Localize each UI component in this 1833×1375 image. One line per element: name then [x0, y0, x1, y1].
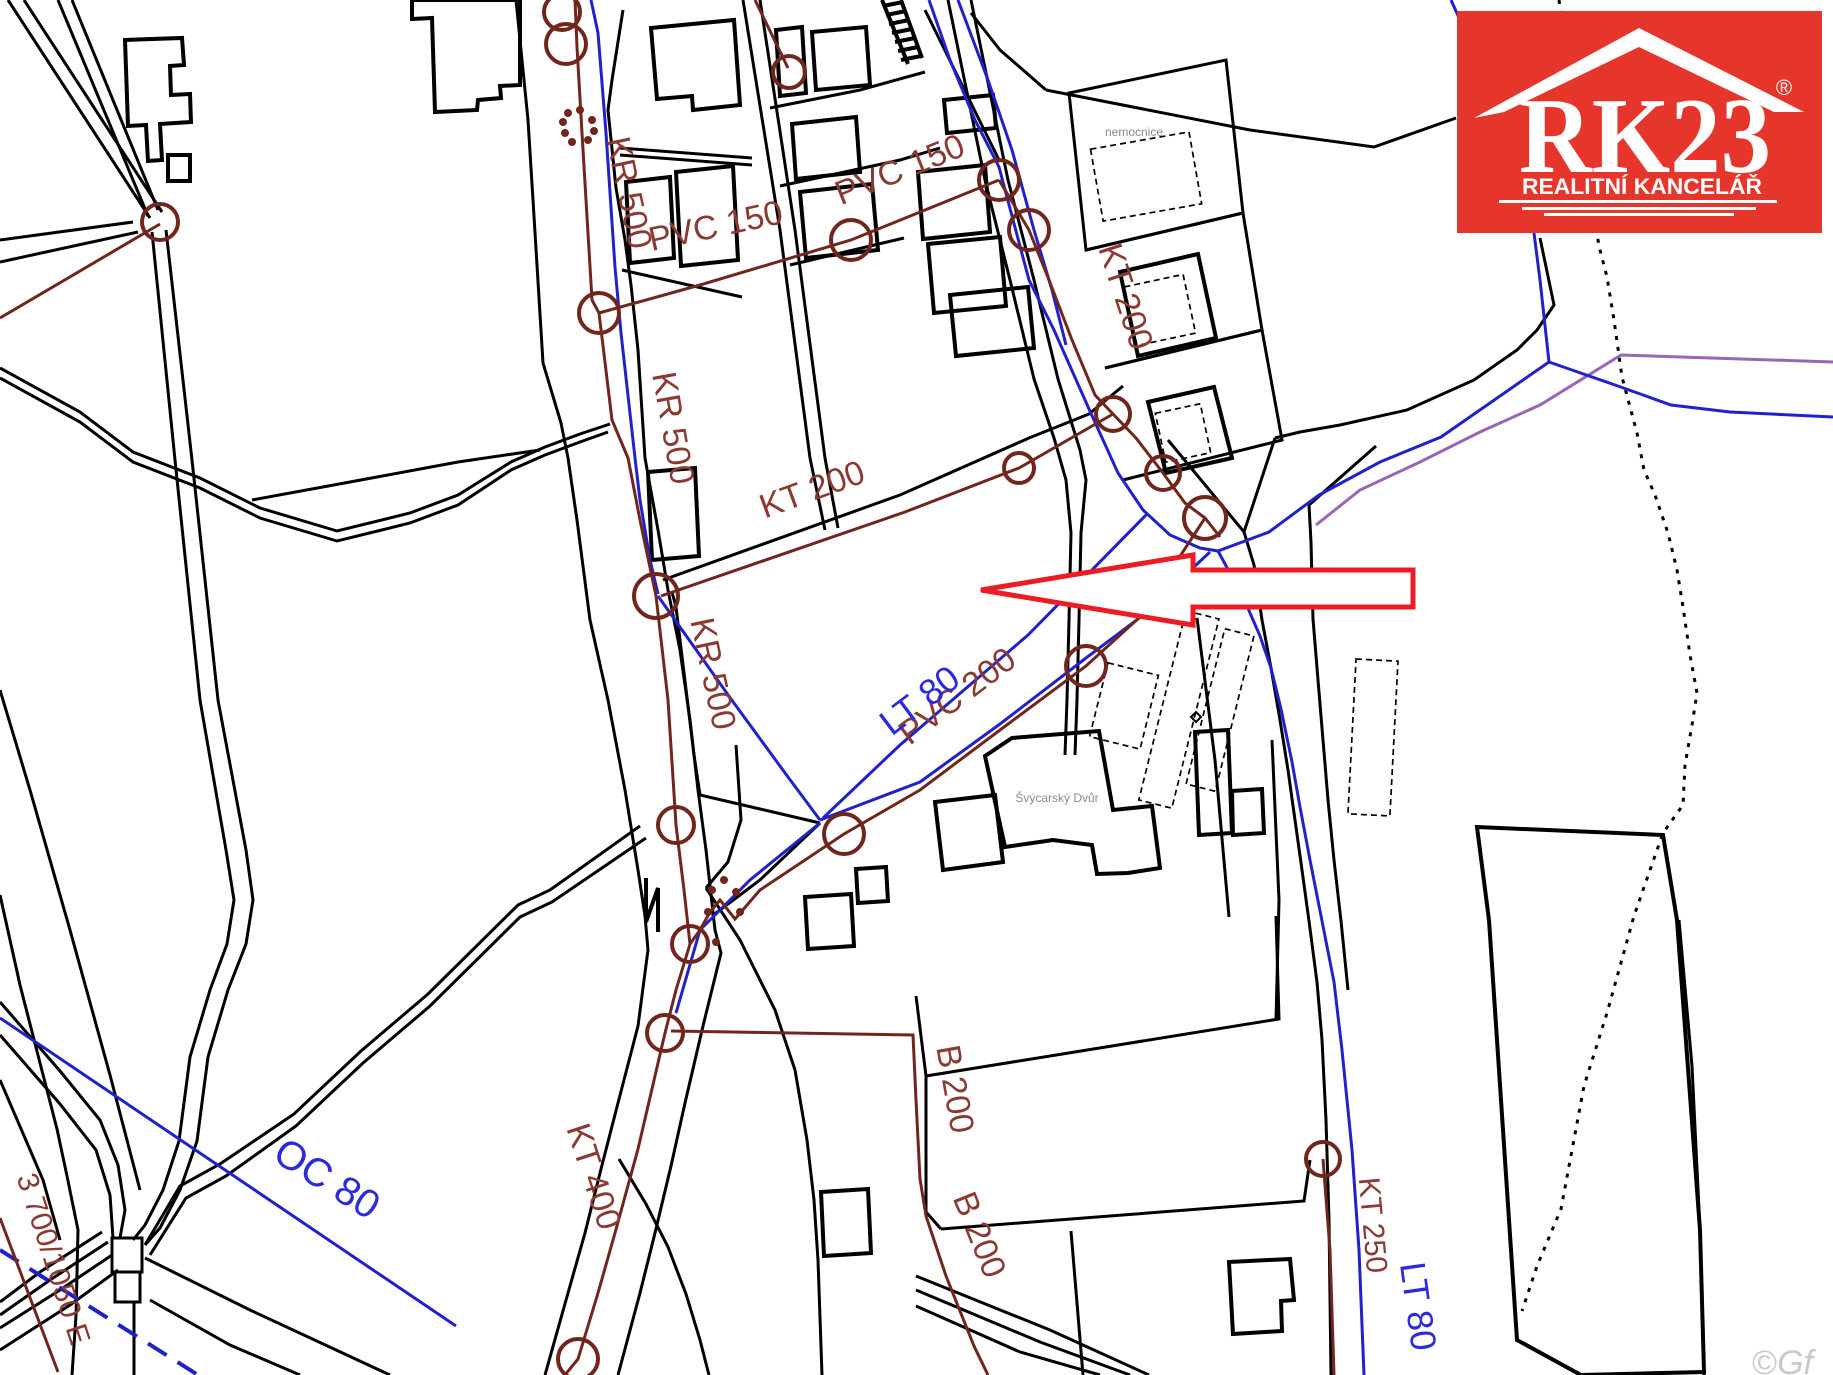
svg-text:REALITNÍ KANCELÁŘ: REALITNÍ KANCELÁŘ — [1522, 174, 1762, 199]
svg-text:nemocnice: nemocnice — [1105, 125, 1163, 139]
svg-text:®: ® — [1776, 75, 1792, 100]
svg-text:Švýcarský Dvůr: Švýcarský Dvůr — [1015, 790, 1098, 805]
svg-text:©Gf: ©Gf — [1752, 1344, 1817, 1375]
